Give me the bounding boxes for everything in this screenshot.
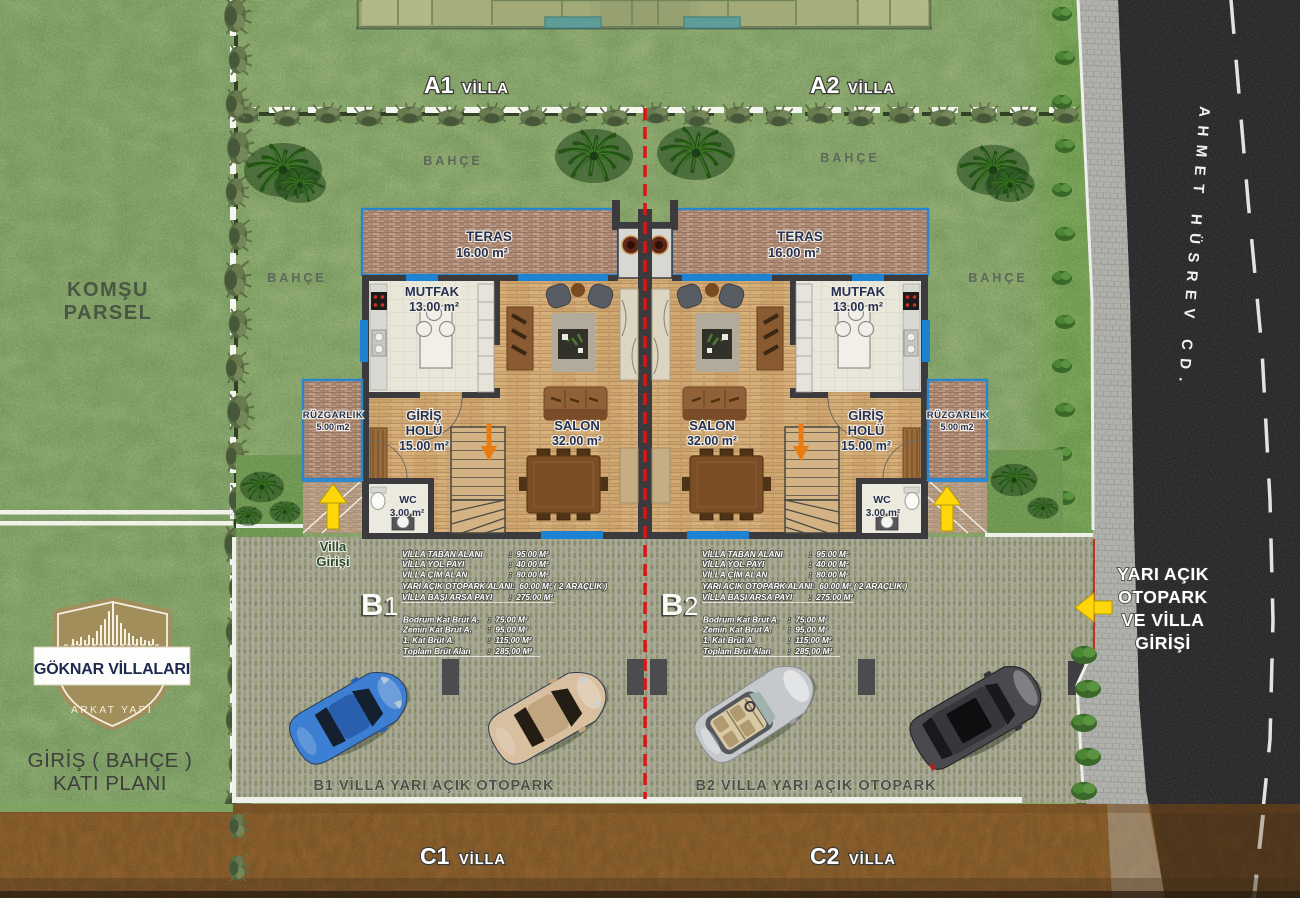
svg-text:YARI AÇIK: YARI AÇIK [1117,564,1209,584]
svg-text:B: B [661,587,683,622]
svg-text:PARSEL: PARSEL [64,302,153,324]
svg-text:16.00 m²: 16.00 m² [768,245,821,260]
svg-text:Toplam Brüt Alan: Toplam Brüt Alan [403,647,471,656]
svg-text:: 75,00 M²: : 75,00 M² [788,616,828,625]
svg-text:: 60.00 M² ( 2 ARAÇLIK ): : 60.00 M² ( 2 ARAÇLIK ) [812,582,908,591]
svg-text:RÜZGARLIK: RÜZGARLIK [303,410,363,421]
svg-text:VE VİLLA: VE VİLLA [1122,610,1205,630]
svg-text:VİLLA: VİLLA [462,80,509,97]
svg-text:3.00 m²: 3.00 m² [390,508,425,519]
svg-text:VİLLA YOL PAYI: VİLLA YOL PAYI [702,559,765,569]
svg-text:Girişi: Girişi [316,554,349,569]
svg-text:SALON: SALON [689,418,735,433]
svg-text:: 75,00 M²: : 75,00 M² [488,616,528,625]
svg-text:B2 VİLLA YARI AÇIK OTOPARK: B2 VİLLA YARI AÇIK OTOPARK [695,777,936,794]
svg-text:TERAS: TERAS [466,229,512,244]
svg-text:YARI AÇIK OTOPARK ALANI: YARI AÇIK OTOPARK ALANI [402,582,513,591]
svg-text:OTOPARK: OTOPARK [1118,587,1207,607]
svg-text:: 115,00 M²: : 115,00 M² [488,636,532,645]
svg-text:VİLLA: VİLLA [459,851,506,868]
svg-text:13.00 m²: 13.00 m² [409,300,459,314]
svg-text:ARKAT YAPI: ARKAT YAPI [71,704,153,716]
svg-text:GİRİŞ: GİRİŞ [406,408,442,423]
svg-text:Bodrum Kat Brüt A.: Bodrum Kat Brüt A. [703,616,779,625]
svg-text:: 285,00 M²: : 285,00 M² [788,647,832,656]
svg-text:VİLLA BAŞI ARSA PAYI: VİLLA BAŞI ARSA PAYI [702,592,793,602]
svg-text:: 115,00 M²: : 115,00 M² [788,636,832,645]
svg-text:VİLLA YOL PAYI: VİLLA YOL PAYI [402,559,465,569]
svg-text:VİLLA TABAN ALANI: VİLLA TABAN ALANI [402,549,483,559]
svg-text:Zemin Kat Brüt A.: Zemin Kat Brüt A. [402,626,472,635]
svg-text:VİLLA: VİLLA [848,80,895,97]
svg-text:5.00 m2: 5.00 m2 [316,422,349,432]
svg-text:RÜZGARLIK: RÜZGARLIK [927,410,987,421]
svg-text:KATI PLANI: KATI PLANI [53,772,167,795]
svg-text:SALON: SALON [554,418,600,433]
svg-text:: 80.00 M²: : 80.00 M² [509,571,549,580]
svg-text:MUTFAK: MUTFAK [405,284,460,299]
svg-text:3.00 m²: 3.00 m² [866,508,901,519]
svg-text:HOLÜ: HOLÜ [848,423,885,438]
svg-text:1. Kat Brüt A.: 1. Kat Brüt A. [703,636,755,645]
svg-text:Bodrum Kat Brüt A.: Bodrum Kat Brüt A. [403,616,479,625]
svg-text:Toplam Brüt Alan: Toplam Brüt Alan [703,647,771,656]
svg-text:C1: C1 [420,843,450,869]
svg-text:A1: A1 [424,72,454,98]
svg-text:Villa: Villa [320,539,347,554]
svg-text:: 40.00 M²: : 40.00 M² [509,560,549,569]
svg-text:VİLLA ÇİM ALAN: VİLLA ÇİM ALAN [702,570,768,580]
svg-text:32.00 m²: 32.00 m² [687,434,737,448]
svg-text:15.00 m²: 15.00 m² [399,439,449,453]
svg-text:: 95,00 M²: : 95,00 M² [788,626,828,635]
svg-text:BAHÇE: BAHÇE [423,154,482,168]
svg-text:: 95.00 M²: : 95.00 M² [809,550,849,559]
svg-text:B1 VİLLA YARI AÇIK OTOPARK: B1 VİLLA YARI AÇIK OTOPARK [313,777,554,794]
svg-text:: 80.00 M²: : 80.00 M² [809,571,849,580]
svg-text:2: 2 [684,591,698,621]
svg-text:1. Kat Brüt A.: 1. Kat Brüt A. [403,636,455,645]
svg-text:: 285,00 M²: : 285,00 M² [488,647,532,656]
svg-text:VİLLA BAŞI ARSA PAYI: VİLLA BAŞI ARSA PAYI [402,592,493,602]
svg-text:VİLLA: VİLLA [849,851,896,868]
svg-text:KOMŞU: KOMŞU [67,279,149,301]
svg-text:GÖKNAR VİLLALARI: GÖKNAR VİLLALARI [34,659,190,678]
svg-text:A2: A2 [810,72,839,98]
svg-text:BAHÇE: BAHÇE [820,151,879,165]
svg-text:VİLLA ÇİM ALAN: VİLLA ÇİM ALAN [402,570,468,580]
svg-text:: 95,00 M²: : 95,00 M² [488,626,528,635]
svg-text:YARI AÇIK OTOPARK ALANI: YARI AÇIK OTOPARK ALANI [702,582,813,591]
svg-text:: 40.00 M²: : 40.00 M² [809,560,849,569]
svg-text:GİRİŞ ( BAHÇE ): GİRİŞ ( BAHÇE ) [28,749,193,772]
svg-text:GİRİŞ: GİRİŞ [848,408,884,423]
svg-text:B: B [361,587,383,622]
svg-text:15.00 m²: 15.00 m² [841,439,891,453]
svg-text:: 275.00 M²: : 275.00 M² [509,593,553,602]
svg-text:HOLÜ: HOLÜ [406,423,443,438]
svg-text:MUTFAK: MUTFAK [831,284,886,299]
svg-text:BAHÇE: BAHÇE [968,271,1027,285]
svg-text:5.00 m2: 5.00 m2 [940,422,973,432]
svg-text:GİRİŞİ: GİRİŞİ [1135,633,1191,653]
svg-text:VİLLA TABAN ALANI: VİLLA TABAN ALANI [702,549,783,559]
svg-text:WC: WC [873,494,891,506]
svg-text:BAHÇE: BAHÇE [267,271,326,285]
svg-text:: 275.00 M²: : 275.00 M² [809,593,853,602]
svg-text:TERAS: TERAS [777,229,823,244]
svg-text:Zemin Kat Brüt A.: Zemin Kat Brüt A. [702,626,772,635]
svg-text:13.00 m²: 13.00 m² [833,300,883,314]
svg-text:32.00 m²: 32.00 m² [552,434,602,448]
svg-text:C2: C2 [810,843,839,869]
svg-text:16.00 m²: 16.00 m² [456,245,509,260]
svg-text:: 95.00 M²: : 95.00 M² [509,550,549,559]
svg-text:: 60.00 M² ( 2 ARAÇLIK ): : 60.00 M² ( 2 ARAÇLIK ) [512,582,608,591]
svg-text:WC: WC [399,494,417,506]
svg-text:1: 1 [384,591,398,621]
